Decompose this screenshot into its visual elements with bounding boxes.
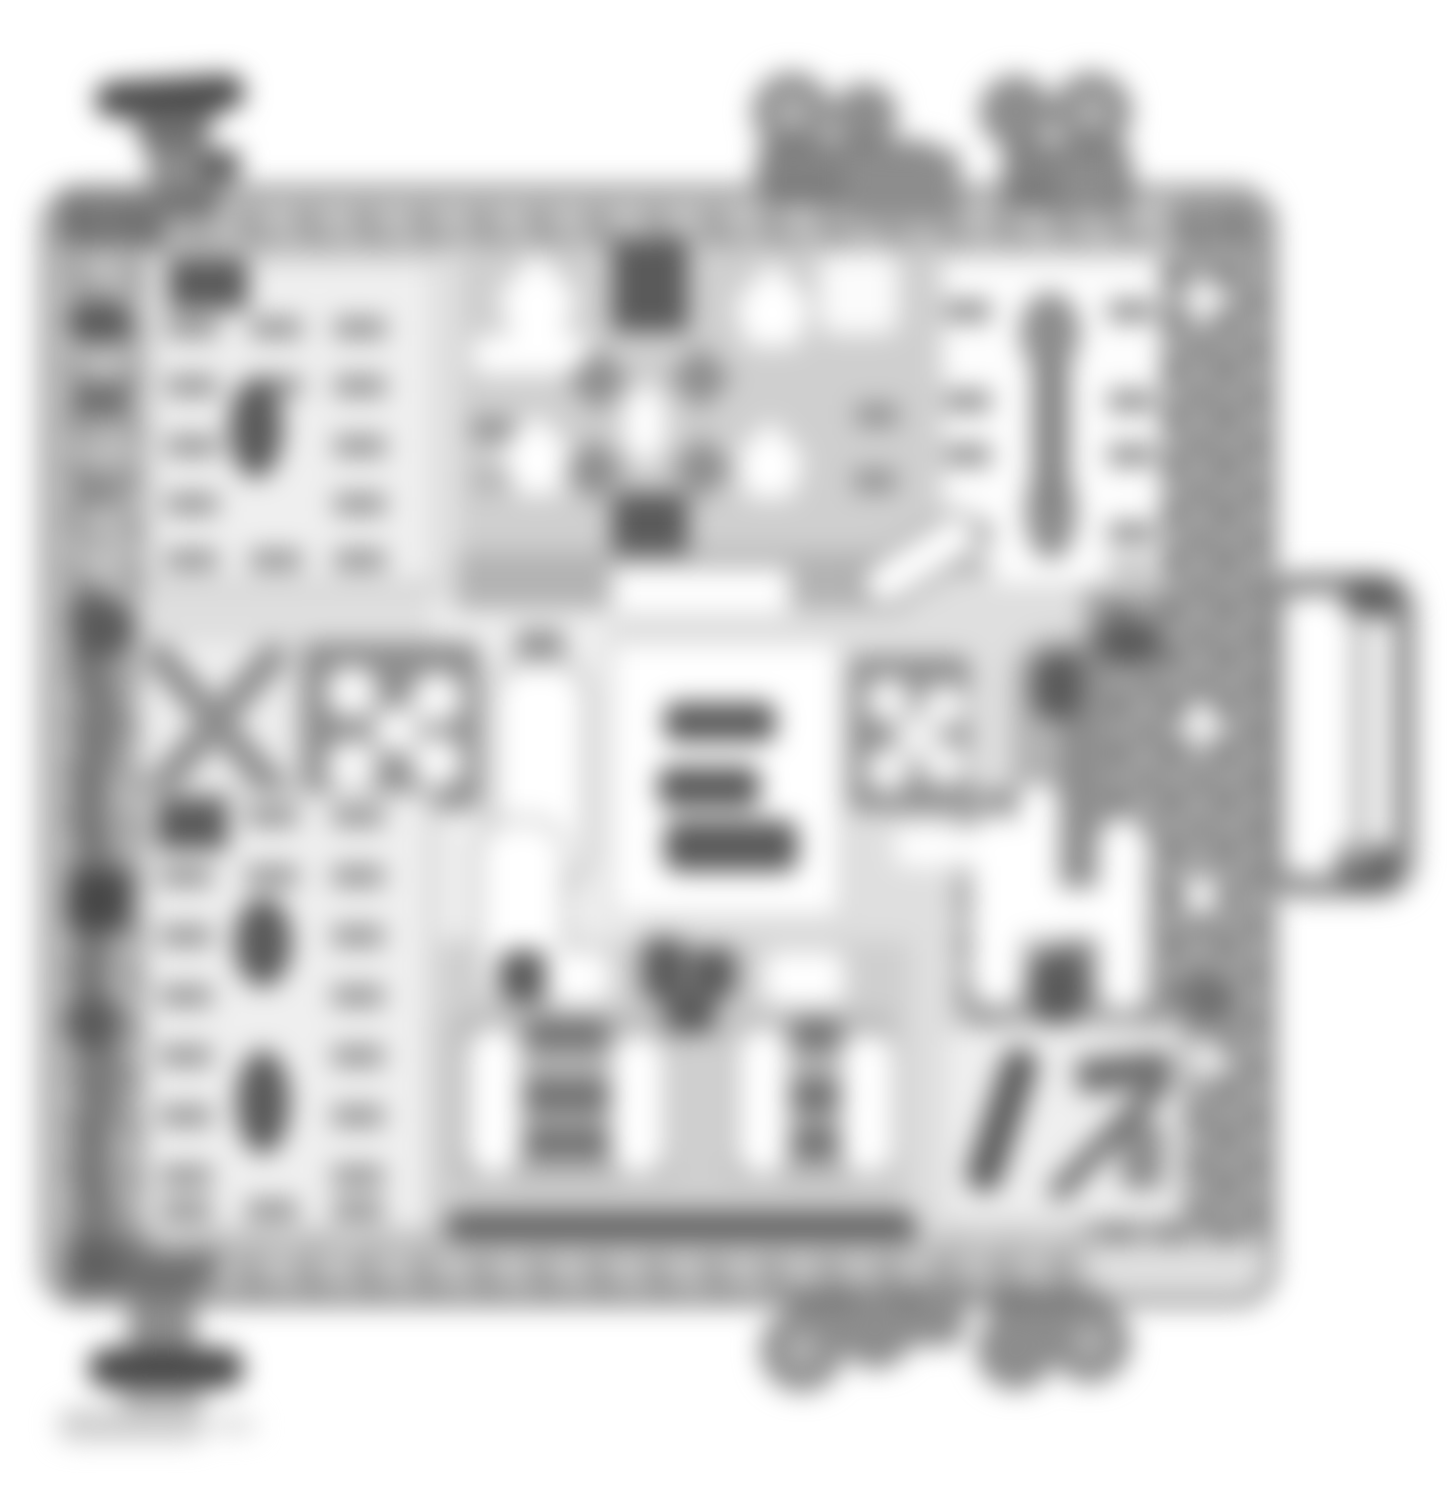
x-pattern-relay <box>140 638 292 806</box>
figure-code-smudge <box>58 1408 256 1442</box>
relay-block-lower-left <box>144 792 432 1232</box>
connector-bottom-a <box>760 1282 966 1392</box>
right-capsule-column <box>1012 636 1104 1040</box>
blurred-fuse-box-figure <box>0 0 1453 1511</box>
dice-pattern-relay <box>302 642 480 810</box>
relay-block-upper-left <box>150 258 438 586</box>
relay-bottom-right <box>940 1026 1180 1220</box>
dot-pattern-relay <box>850 656 970 812</box>
side-tab <box>1272 580 1404 888</box>
diagram-canvas <box>0 0 1453 1511</box>
connector-top-a <box>752 72 960 222</box>
center-label-block <box>610 640 842 918</box>
left-terminal-strip <box>52 254 140 1294</box>
bottom-bar <box>444 1210 918 1244</box>
